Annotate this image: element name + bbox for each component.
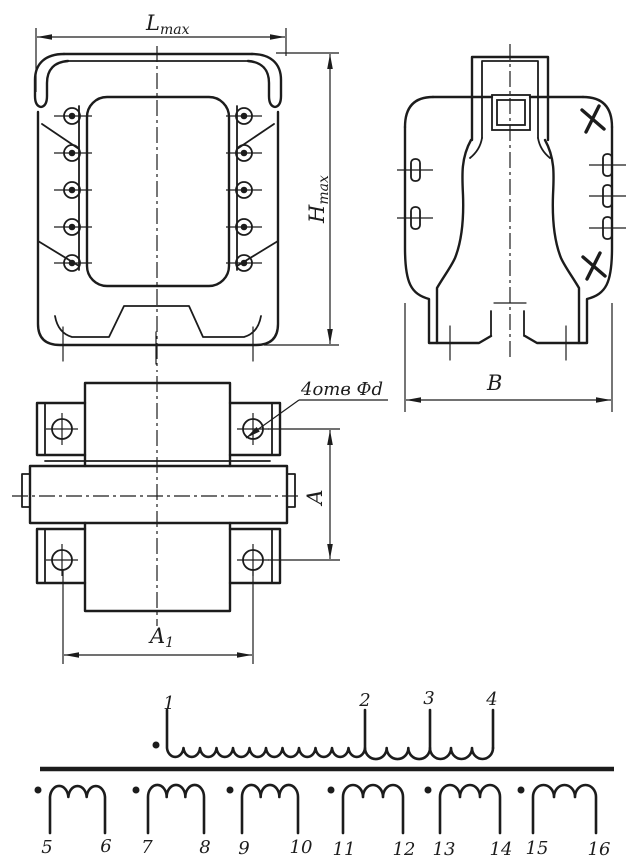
secondary-winding: 13 14 <box>425 785 513 860</box>
terminal-7-label: 7 <box>141 837 153 858</box>
terminal-2-label: 2 <box>358 690 370 711</box>
terminal-14-label: 14 <box>490 839 513 860</box>
tab <box>589 154 626 176</box>
terminal-10-label: 10 <box>290 837 313 858</box>
pin <box>226 108 262 124</box>
terminal-3-label: 3 <box>423 688 434 709</box>
side-tabs-right <box>589 154 626 239</box>
a-dimension-label: A <box>303 489 327 506</box>
terminal-11-label: 11 <box>333 839 356 860</box>
tab <box>589 185 626 207</box>
terminal-4-label: 4 <box>485 689 497 710</box>
pin <box>226 219 262 235</box>
terminal-15-label: 15 <box>526 838 549 859</box>
side-tabs-left <box>397 159 433 229</box>
terminal-16-label: 16 <box>588 839 611 860</box>
a1-dimension-label: A1 <box>148 624 174 651</box>
front-view: Lmax Hmax <box>35 11 339 372</box>
pin <box>226 145 262 161</box>
terminal-13-label: 13 <box>433 839 456 860</box>
hole <box>237 413 269 445</box>
lmax-label: Lmax <box>145 11 190 38</box>
secondary-winding: 5 6 <box>35 786 112 858</box>
hmax-label: Hmax <box>305 175 332 224</box>
secondary-winding: 9 10 <box>227 785 313 859</box>
terminal-6-label: 6 <box>100 836 111 857</box>
primary-winding: 1 2 3 4 <box>153 688 498 759</box>
drawing-canvas: Lmax Hmax <box>0 0 640 867</box>
secondary-winding: 11 12 <box>328 785 416 860</box>
plan-view: 4отв Фd A A1 <box>12 376 388 664</box>
front-body-outline <box>35 54 281 364</box>
secondary-winding: 7 8 <box>133 785 211 858</box>
terminal-5-label: 5 <box>41 837 52 858</box>
pin <box>226 255 262 271</box>
transformer-technical-drawing: Lmax Hmax <box>0 0 640 867</box>
a1-dimension: A1 <box>63 570 253 664</box>
terminal-12-label: 12 <box>393 839 416 860</box>
lmax-dimension: Lmax <box>36 11 286 92</box>
front-pins-right <box>226 108 262 271</box>
polarity-dot <box>227 787 234 794</box>
polarity-dot <box>35 787 42 794</box>
polarity-dot <box>153 742 160 749</box>
hmax-dimension: Hmax <box>264 53 339 345</box>
holes-callout-label: 4отв Фd <box>300 379 383 400</box>
terminal-8-label: 8 <box>199 837 210 858</box>
side-body-outline <box>405 57 612 360</box>
cross-mark <box>582 106 604 132</box>
tab <box>397 159 433 181</box>
winding-schematic: 1 2 3 4 5 6 7 8 9 10 11 12 <box>35 688 615 860</box>
terminal-1-label: 1 <box>163 693 174 714</box>
hole <box>46 544 78 576</box>
tab <box>589 217 626 239</box>
tab <box>397 207 433 229</box>
polarity-dot <box>328 787 335 794</box>
hole <box>46 413 78 445</box>
polarity-dot <box>425 787 432 794</box>
b-dimension-label: B <box>486 371 502 395</box>
pin <box>226 182 262 198</box>
secondary-winding: 15 16 <box>518 785 611 860</box>
polarity-dot <box>518 787 525 794</box>
side-view: B <box>397 44 626 412</box>
cross-mark <box>583 253 605 279</box>
polarity-dot <box>133 787 140 794</box>
terminal-9-label: 9 <box>238 838 249 859</box>
